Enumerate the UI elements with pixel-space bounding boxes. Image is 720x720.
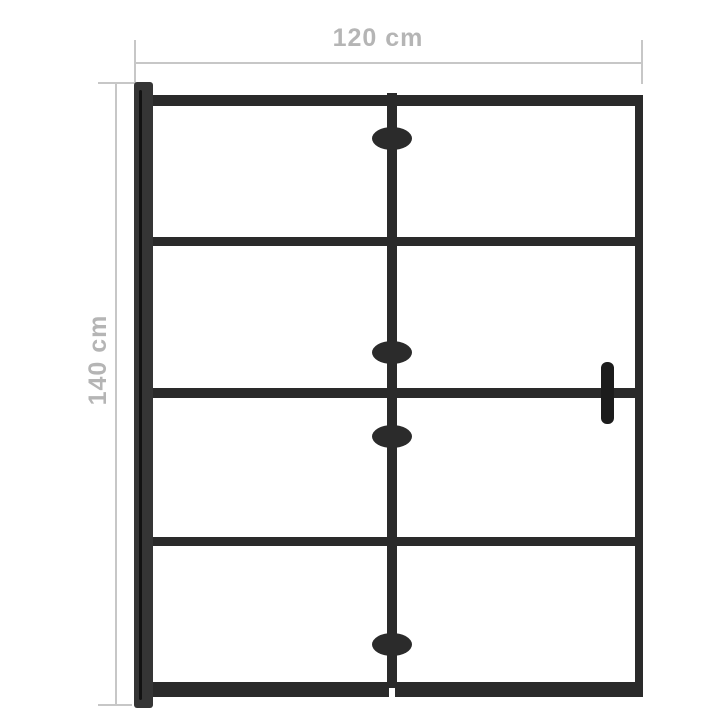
height-dimension-tick-bottom <box>98 704 132 706</box>
hinge-top <box>372 127 412 150</box>
wall-profile <box>134 82 153 708</box>
width-dimension-tick-right <box>641 40 643 84</box>
hinge-upper-middle <box>372 341 412 364</box>
right-stile <box>635 95 643 697</box>
height-dimension-label: 140 cm <box>83 260 113 460</box>
height-dimension-line <box>115 83 117 706</box>
fold-gap-slot <box>389 688 395 698</box>
height-dimension-tick-top <box>98 82 135 84</box>
top-rail <box>153 95 643 106</box>
wall-profile-groove <box>139 90 142 700</box>
width-dimension-line <box>135 62 643 64</box>
center-fold-divider <box>387 93 397 689</box>
width-dimension-tick-left <box>134 40 136 84</box>
bottom-rail <box>153 682 643 697</box>
product-diagram: 120 cm 140 cm <box>0 0 720 720</box>
hinge-lower-middle <box>372 425 412 448</box>
hinge-bottom <box>372 633 412 656</box>
width-dimension-label: 120 cm <box>278 24 478 53</box>
door-handle <box>601 362 614 424</box>
